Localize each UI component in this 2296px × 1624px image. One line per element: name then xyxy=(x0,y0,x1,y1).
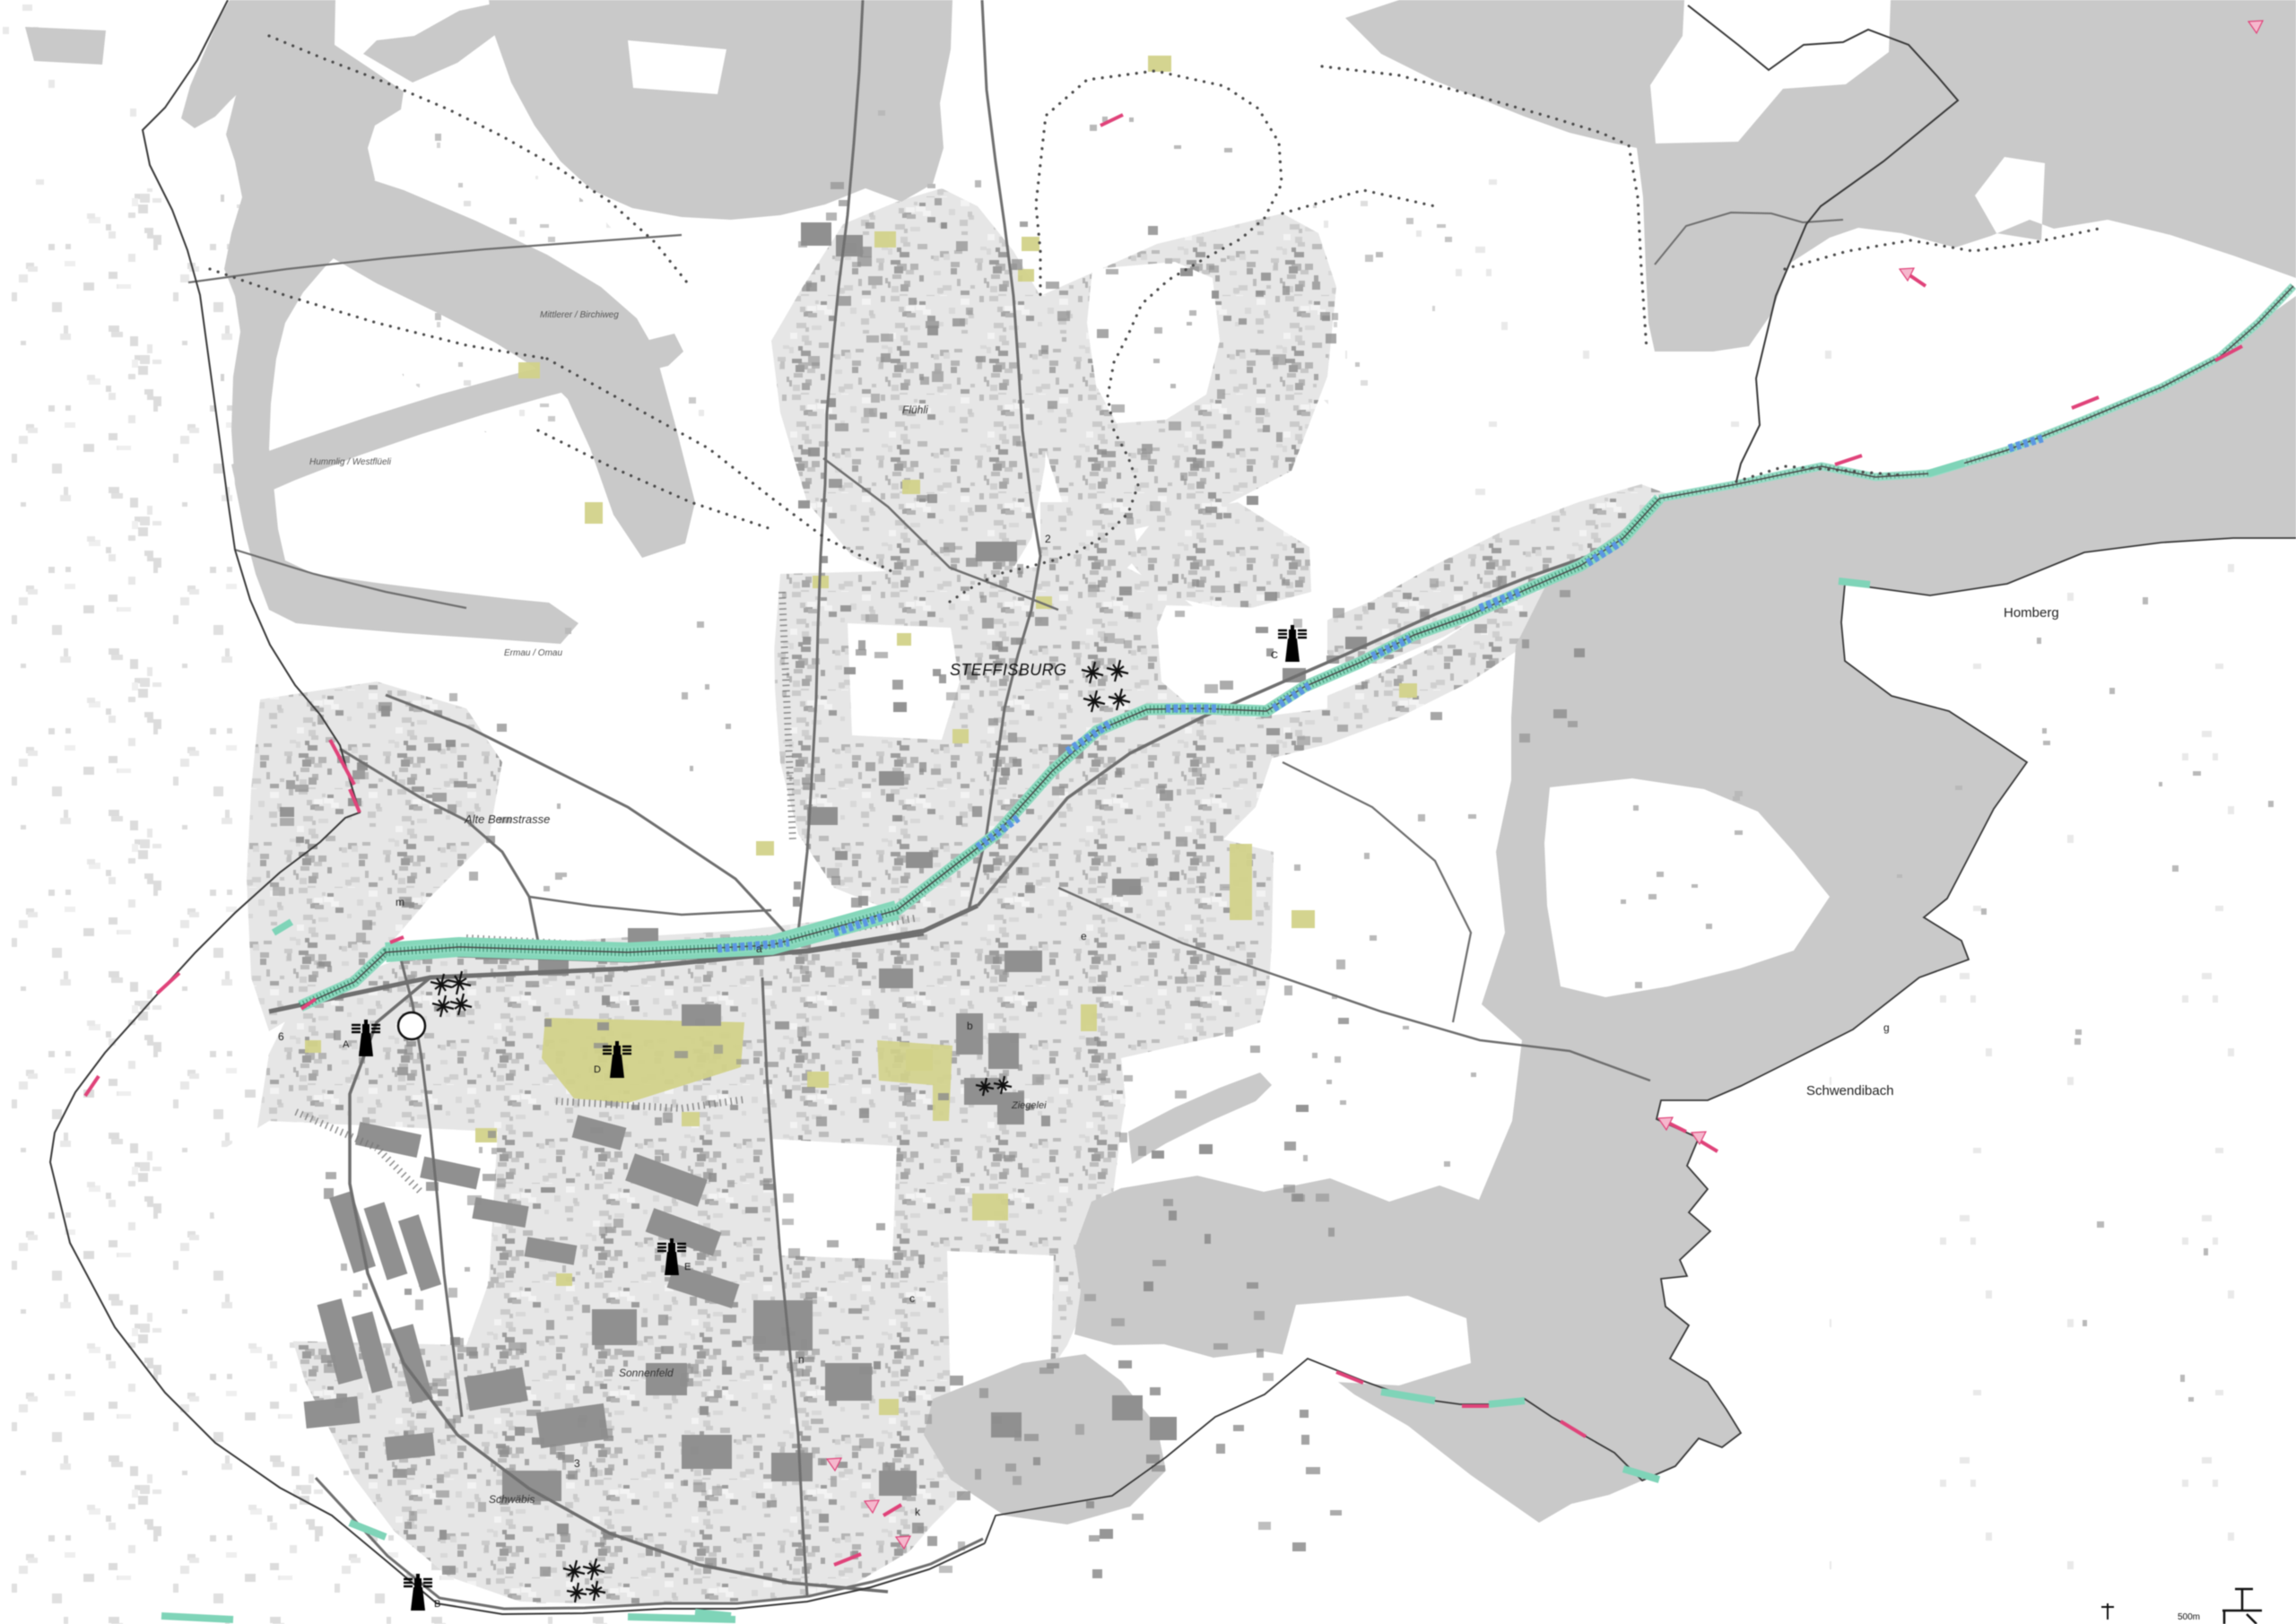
svg-text:E: E xyxy=(684,1262,691,1272)
svg-text:Ziegelei: Ziegelei xyxy=(1011,1100,1047,1111)
svg-text:2: 2 xyxy=(1045,533,1051,545)
svg-text:e: e xyxy=(1081,930,1087,942)
svg-text:500m: 500m xyxy=(2178,1612,2200,1622)
svg-text:g: g xyxy=(1883,1021,1890,1034)
svg-text:Sonnenfeld: Sonnenfeld xyxy=(619,1367,674,1379)
svg-text:Mittlerer / Birchiweg: Mittlerer / Birchiweg xyxy=(540,310,619,320)
svg-text:B: B xyxy=(434,1599,440,1610)
svg-text:n: n xyxy=(798,1353,804,1366)
svg-text:D: D xyxy=(594,1064,601,1075)
svg-text:6: 6 xyxy=(278,1030,284,1043)
svg-text:A: A xyxy=(343,1039,350,1050)
svg-text:Alte Bernstrasse: Alte Bernstrasse xyxy=(464,812,550,826)
svg-text:Ermau / Omau: Ermau / Omau xyxy=(504,648,562,658)
svg-text:k: k xyxy=(915,1506,921,1518)
svg-text:b: b xyxy=(967,1020,973,1032)
svg-text:Schwendibach: Schwendibach xyxy=(1806,1083,1894,1099)
svg-text:m: m xyxy=(396,896,404,908)
svg-text:3: 3 xyxy=(574,1457,580,1470)
svg-text:C: C xyxy=(1271,650,1278,661)
svg-text:Hummlig / Westflüeli: Hummlig / Westflüeli xyxy=(309,457,392,467)
svg-text:Flühli: Flühli xyxy=(902,404,928,416)
svg-text:Homberg: Homberg xyxy=(2004,605,2059,621)
svg-text:STEFFISBURG: STEFFISBURG xyxy=(950,661,1066,679)
svg-text:a: a xyxy=(756,942,762,955)
svg-text:Schwäbis: Schwäbis xyxy=(489,1493,535,1506)
svg-text:c: c xyxy=(909,1292,915,1305)
